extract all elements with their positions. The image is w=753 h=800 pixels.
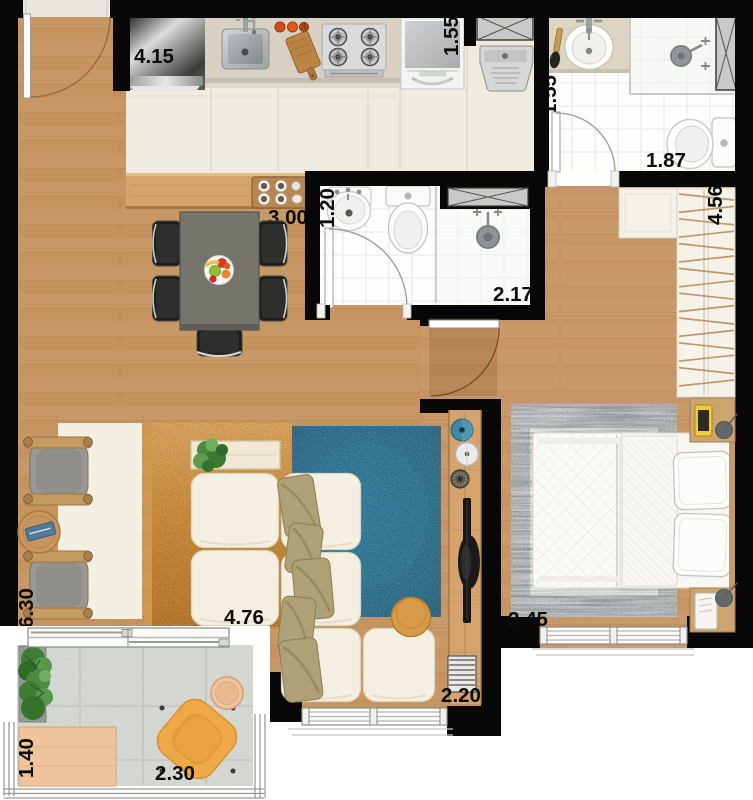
- svg-text:2.17: 2.17: [493, 283, 533, 306]
- svg-text:1.55: 1.55: [440, 16, 463, 56]
- svg-text:4.15: 4.15: [134, 45, 174, 68]
- svg-text:6.30: 6.30: [15, 588, 38, 628]
- svg-text:1.40: 1.40: [15, 738, 38, 778]
- svg-text:4.56: 4.56: [704, 185, 727, 225]
- svg-text:1.87: 1.87: [646, 149, 686, 172]
- svg-text:2.30: 2.30: [155, 762, 195, 785]
- svg-text:2.20: 2.20: [441, 684, 481, 707]
- svg-text:4.76: 4.76: [224, 606, 264, 629]
